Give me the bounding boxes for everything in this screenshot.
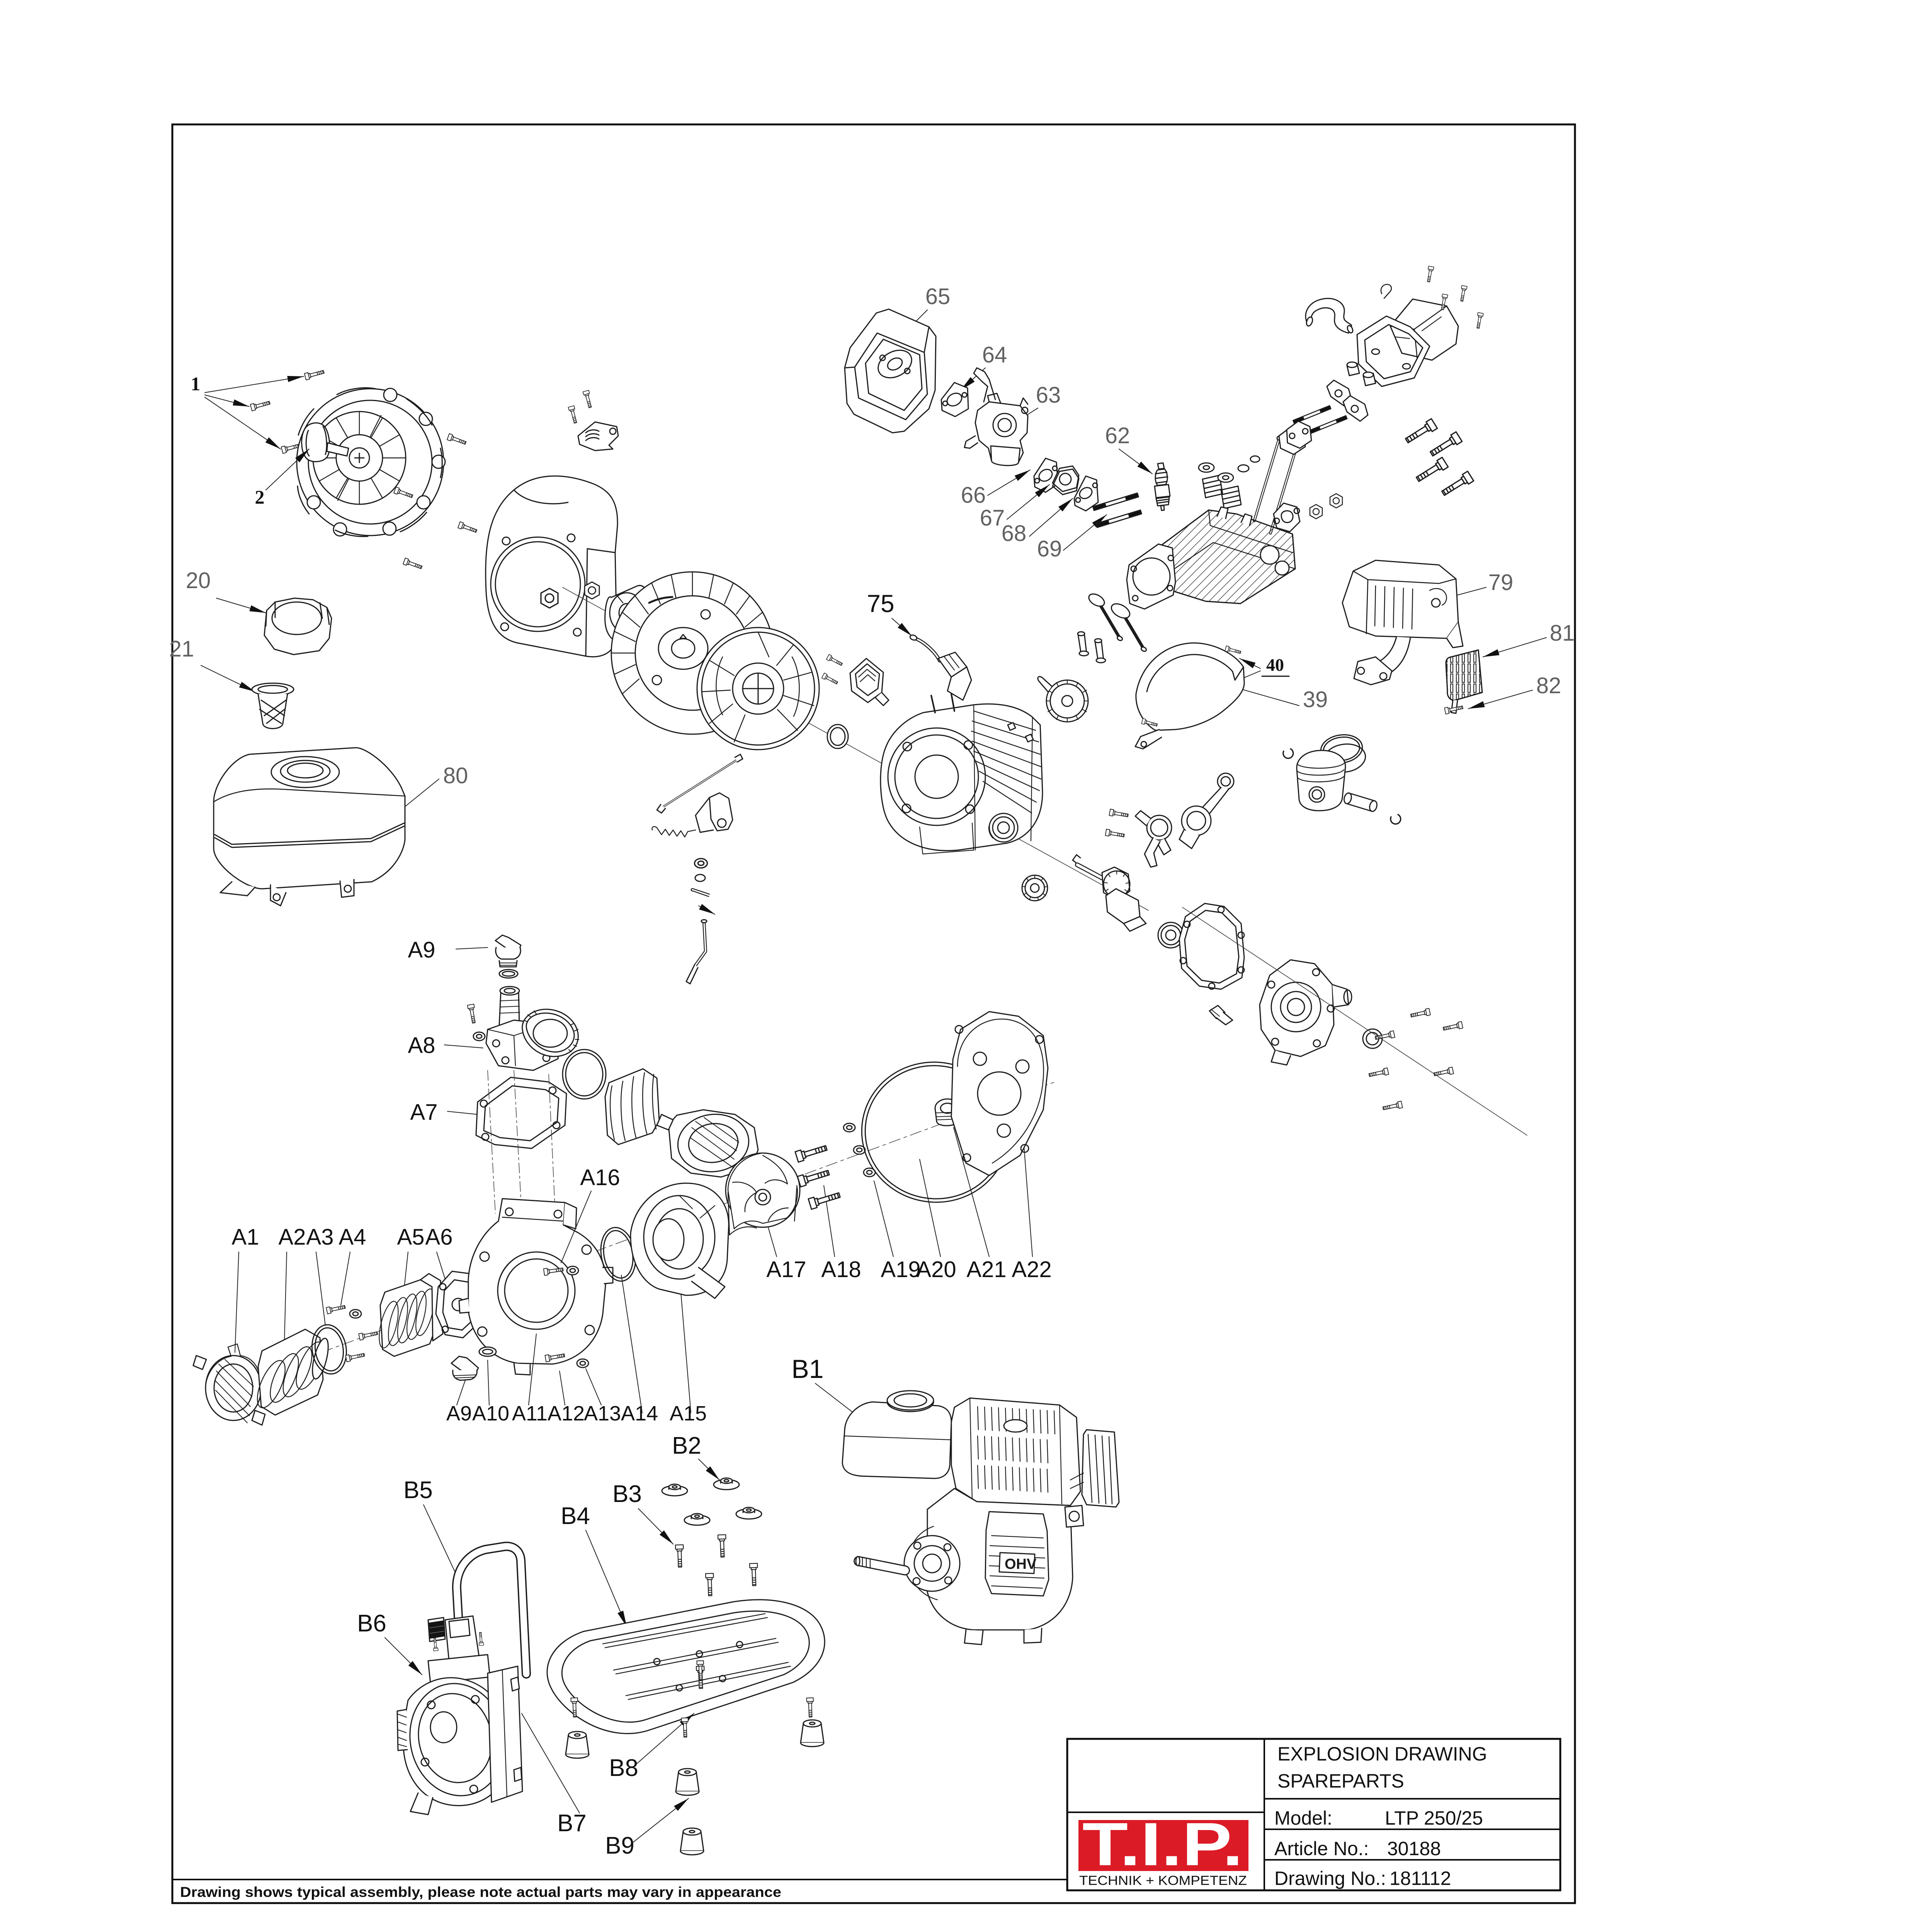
svg-text:2: 2 <box>255 486 265 508</box>
svg-text:79: 79 <box>1488 570 1514 595</box>
svg-text:T.I.P.: T.I.P. <box>1082 1810 1243 1878</box>
svg-text:A5: A5 <box>397 1225 425 1250</box>
svg-text:A17: A17 <box>766 1257 806 1282</box>
svg-text:TECHNIK + KOMPETENZ: TECHNIK + KOMPETENZ <box>1079 1873 1247 1888</box>
svg-text:A9: A9 <box>446 1402 472 1425</box>
svg-text:63: 63 <box>1036 383 1061 408</box>
svg-text:A9: A9 <box>408 937 435 963</box>
svg-text:20: 20 <box>186 568 211 593</box>
svg-text:LTP 250/25: LTP 250/25 <box>1385 1807 1483 1829</box>
svg-text:81: 81 <box>1550 621 1575 646</box>
svg-text:B1: B1 <box>791 1354 823 1384</box>
svg-text:B5: B5 <box>403 1477 433 1504</box>
svg-text:A1: A1 <box>232 1225 259 1250</box>
svg-text:SPAREPARTS: SPAREPARTS <box>1277 1770 1404 1792</box>
svg-text:B3: B3 <box>612 1481 642 1507</box>
svg-text:62: 62 <box>1105 423 1130 448</box>
svg-text:Drawing No.:: Drawing No.: <box>1274 1868 1386 1889</box>
svg-text:B7: B7 <box>557 1810 587 1837</box>
svg-text:A19: A19 <box>881 1257 920 1282</box>
svg-text:A16: A16 <box>580 1165 620 1190</box>
svg-text:40: 40 <box>1266 655 1284 675</box>
svg-text:80: 80 <box>443 763 468 788</box>
svg-text:181112: 181112 <box>1389 1868 1451 1889</box>
svg-text:75: 75 <box>867 590 894 617</box>
svg-text:68: 68 <box>1002 521 1027 546</box>
svg-text:30188: 30188 <box>1387 1838 1441 1859</box>
svg-text:A21: A21 <box>966 1257 1006 1282</box>
svg-text:A14: A14 <box>621 1402 658 1425</box>
svg-text:64: 64 <box>982 342 1007 367</box>
svg-text:EXPLOSION DRAWING: EXPLOSION DRAWING <box>1277 1743 1487 1765</box>
svg-text:Drawing shows typical assembly: Drawing shows typical assembly, please n… <box>180 1884 781 1900</box>
svg-text:69: 69 <box>1037 536 1062 561</box>
svg-text:82: 82 <box>1536 673 1561 698</box>
svg-text:A6: A6 <box>425 1225 453 1250</box>
svg-text:A4: A4 <box>339 1225 366 1250</box>
svg-text:A18: A18 <box>821 1257 861 1282</box>
svg-text:B4: B4 <box>561 1503 590 1529</box>
svg-text:A22: A22 <box>1012 1257 1051 1282</box>
svg-text:B6: B6 <box>357 1610 386 1637</box>
svg-text:39: 39 <box>1303 687 1328 712</box>
svg-text:B9: B9 <box>605 1832 634 1859</box>
svg-text:Article No.:: Article No.: <box>1274 1838 1369 1859</box>
svg-text:A20: A20 <box>916 1257 956 1282</box>
svg-text:66: 66 <box>961 483 986 508</box>
svg-text:A8: A8 <box>408 1033 435 1058</box>
svg-text:A13: A13 <box>584 1402 621 1425</box>
svg-text:A12: A12 <box>548 1402 585 1425</box>
svg-text:A10: A10 <box>472 1402 509 1425</box>
svg-text:A15: A15 <box>670 1402 707 1425</box>
svg-text:65: 65 <box>925 284 951 309</box>
svg-text:1: 1 <box>191 373 201 395</box>
svg-text:A11: A11 <box>512 1402 548 1425</box>
svg-text:21: 21 <box>169 636 194 662</box>
svg-text:B8: B8 <box>609 1755 638 1781</box>
svg-text:A7: A7 <box>410 1100 438 1125</box>
svg-text:Model:: Model: <box>1274 1807 1332 1829</box>
svg-text:67: 67 <box>980 505 1005 531</box>
svg-text:B2: B2 <box>672 1432 701 1459</box>
svg-text:A3: A3 <box>306 1225 334 1250</box>
svg-text:A2: A2 <box>279 1225 306 1250</box>
svg-text:OHV: OHV <box>1005 1556 1037 1572</box>
